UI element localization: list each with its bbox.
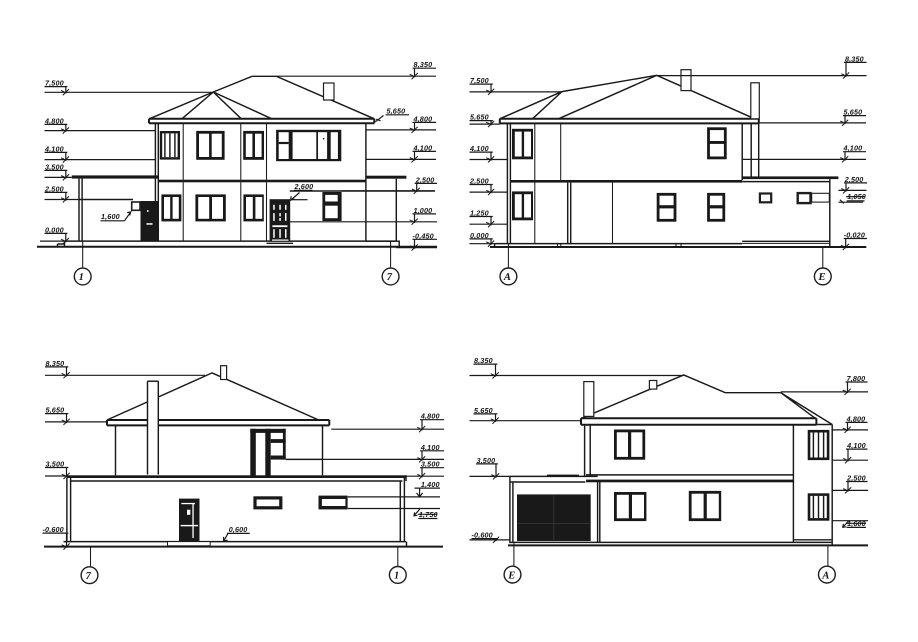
svg-text:7: 7 — [387, 272, 393, 283]
svg-text:А: А — [821, 570, 829, 581]
svg-text:1: 1 — [79, 272, 84, 283]
svg-text:5,650: 5,650 — [387, 106, 406, 115]
svg-text:0,600: 0,600 — [229, 525, 248, 534]
svg-text:Е: Е — [817, 272, 825, 283]
svg-text:1,600: 1,600 — [101, 212, 120, 221]
svg-text:2,600: 2,600 — [294, 182, 314, 191]
svg-text:7: 7 — [86, 571, 92, 582]
svg-text:Е: Е — [507, 570, 515, 581]
svg-text:А: А — [503, 272, 511, 283]
svg-text:1: 1 — [394, 571, 399, 582]
